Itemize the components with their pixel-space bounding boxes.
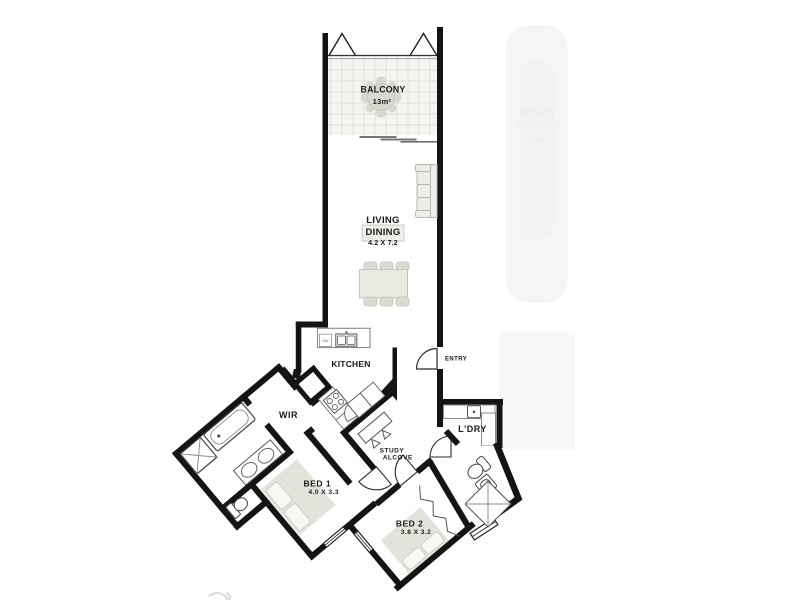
svg-text:EQUITY: EQUITY xyxy=(519,108,557,119)
svg-text:DINING: DINING xyxy=(365,227,400,238)
svg-text:4.2 X 7.2: 4.2 X 7.2 xyxy=(368,240,398,247)
svg-text:PASSING: PASSING xyxy=(516,120,560,131)
svg-text:BED 2: BED 2 xyxy=(396,519,424,529)
svg-text:4.0 X 3.3: 4.0 X 3.3 xyxy=(308,489,339,496)
svg-text:L'DRY: L'DRY xyxy=(458,424,487,434)
svg-text:BALCONY: BALCONY xyxy=(361,85,406,95)
svg-text:ENTRY: ENTRY xyxy=(445,357,467,363)
svg-text:13m²: 13m² xyxy=(373,97,392,106)
svg-text:3.8 X 3.2: 3.8 X 3.2 xyxy=(401,529,432,536)
svg-text:WIR: WIR xyxy=(279,410,298,420)
svg-text:DW: DW xyxy=(323,339,330,343)
svg-text:ALCOVE: ALCOVE xyxy=(383,454,413,461)
svg-text:KITCHEN: KITCHEN xyxy=(331,359,370,369)
svg-text:BED 1: BED 1 xyxy=(304,478,332,488)
svg-text:LIVING: LIVING xyxy=(366,215,399,226)
svg-text:13m: 13m xyxy=(530,137,544,144)
